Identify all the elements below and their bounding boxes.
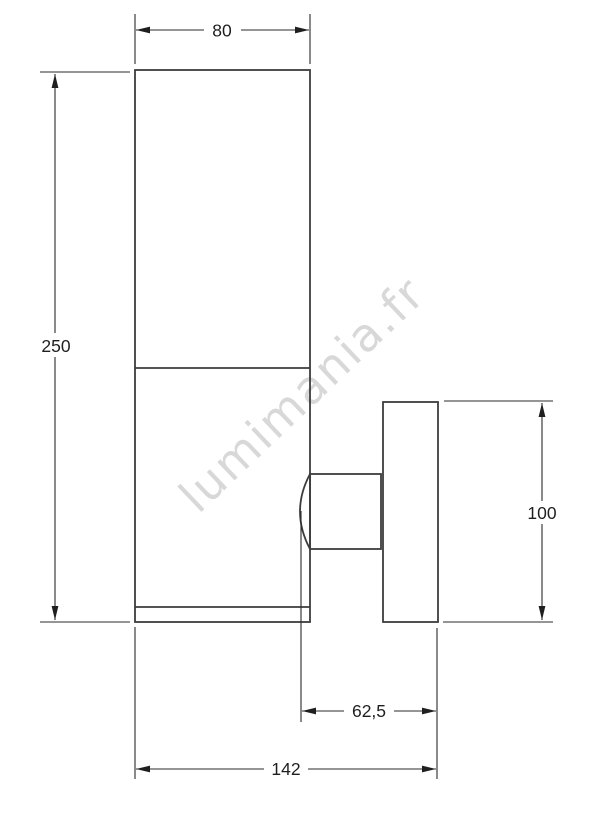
dim-plate-height-arrow-top bbox=[539, 403, 546, 417]
lamp-outline-group bbox=[135, 70, 438, 622]
dim-projection: 62,5 bbox=[301, 511, 437, 779]
dim-body-height-arrow-top bbox=[52, 74, 59, 88]
dim-body-width-arrow-left bbox=[136, 27, 150, 34]
dim-plate-height-label: 100 bbox=[527, 503, 556, 523]
connector-outline bbox=[310, 474, 381, 549]
watermark-text: lumimania.fr bbox=[169, 266, 436, 523]
dim-body-height: 250 bbox=[33, 72, 130, 622]
dim-total-depth-arrow-right bbox=[422, 766, 436, 773]
mounting-plate-outline bbox=[383, 402, 438, 622]
dim-plate-height: 100 bbox=[443, 401, 565, 622]
dim-body-width-arrow-right bbox=[295, 27, 309, 34]
dim-body-height-label: 250 bbox=[41, 336, 70, 356]
dim-projection-arrow-left bbox=[302, 708, 316, 715]
dim-body-height-arrow-bottom bbox=[52, 606, 59, 620]
lamp-body-outline bbox=[135, 70, 310, 622]
dim-body-width-label: 80 bbox=[212, 21, 232, 41]
dim-body-width: 80 bbox=[135, 14, 310, 64]
dim-projection-arrow-right bbox=[422, 708, 436, 715]
dim-plate-height-arrow-bottom bbox=[539, 606, 546, 620]
dim-projection-label: 62,5 bbox=[352, 701, 386, 721]
dim-total-depth-label: 142 bbox=[271, 759, 300, 779]
lamp-dimension-drawing: lumimania.fr 80 bbox=[0, 0, 605, 813]
drawing-canvas: lumimania.fr 80 bbox=[0, 0, 605, 813]
dim-total-depth-arrow-left bbox=[136, 766, 150, 773]
